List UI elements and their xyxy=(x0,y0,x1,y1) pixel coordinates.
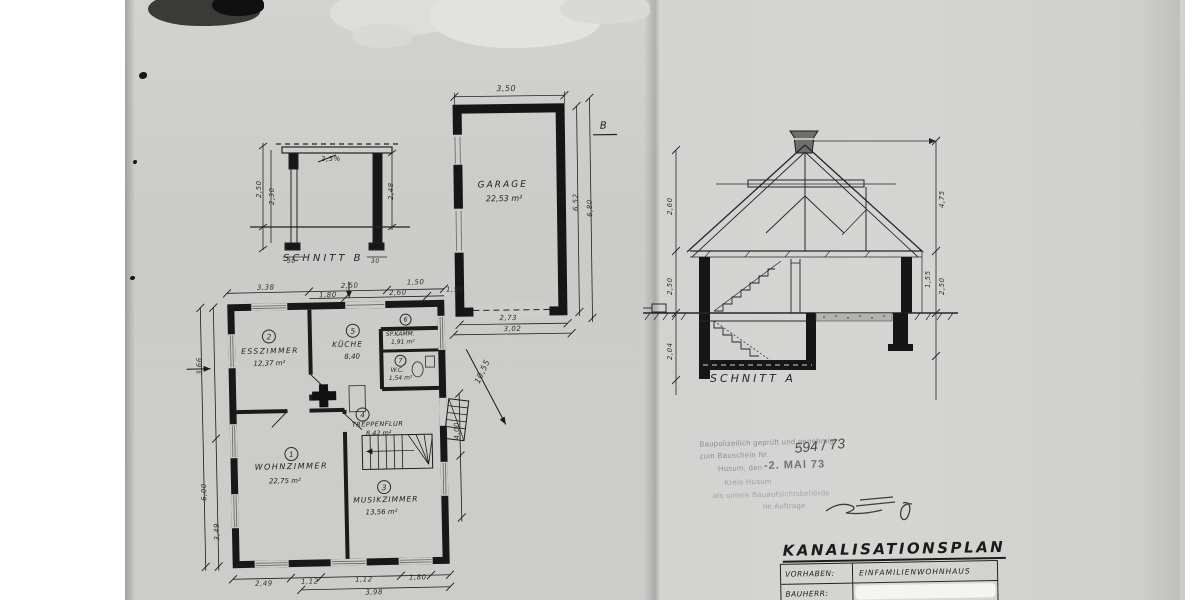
section-a-drawing xyxy=(643,131,958,400)
garage-plan-drawing xyxy=(446,91,619,339)
garage-walls xyxy=(453,103,568,317)
signature xyxy=(826,497,912,520)
scanned-drawing-page: SCHNITT B 2,5% 2,50 2,30 2,48 30 30 GARA… xyxy=(0,0,1200,600)
section-b-drawing xyxy=(250,143,410,257)
wall-left xyxy=(289,153,298,169)
right-wall xyxy=(901,257,912,313)
stair-ground-floor xyxy=(714,269,775,311)
sewer-pipe-connection xyxy=(652,304,666,312)
chimney xyxy=(790,131,818,153)
wall-right xyxy=(373,153,382,243)
floor-plan-drawing xyxy=(185,279,509,597)
staircase xyxy=(362,434,433,469)
entry-steps xyxy=(444,399,469,441)
drawing-linework xyxy=(0,0,1200,600)
stair-basement xyxy=(714,321,759,356)
wc-fixture xyxy=(412,362,423,377)
floor-slab-hatched xyxy=(816,313,892,321)
kitchen-sink xyxy=(349,385,366,411)
